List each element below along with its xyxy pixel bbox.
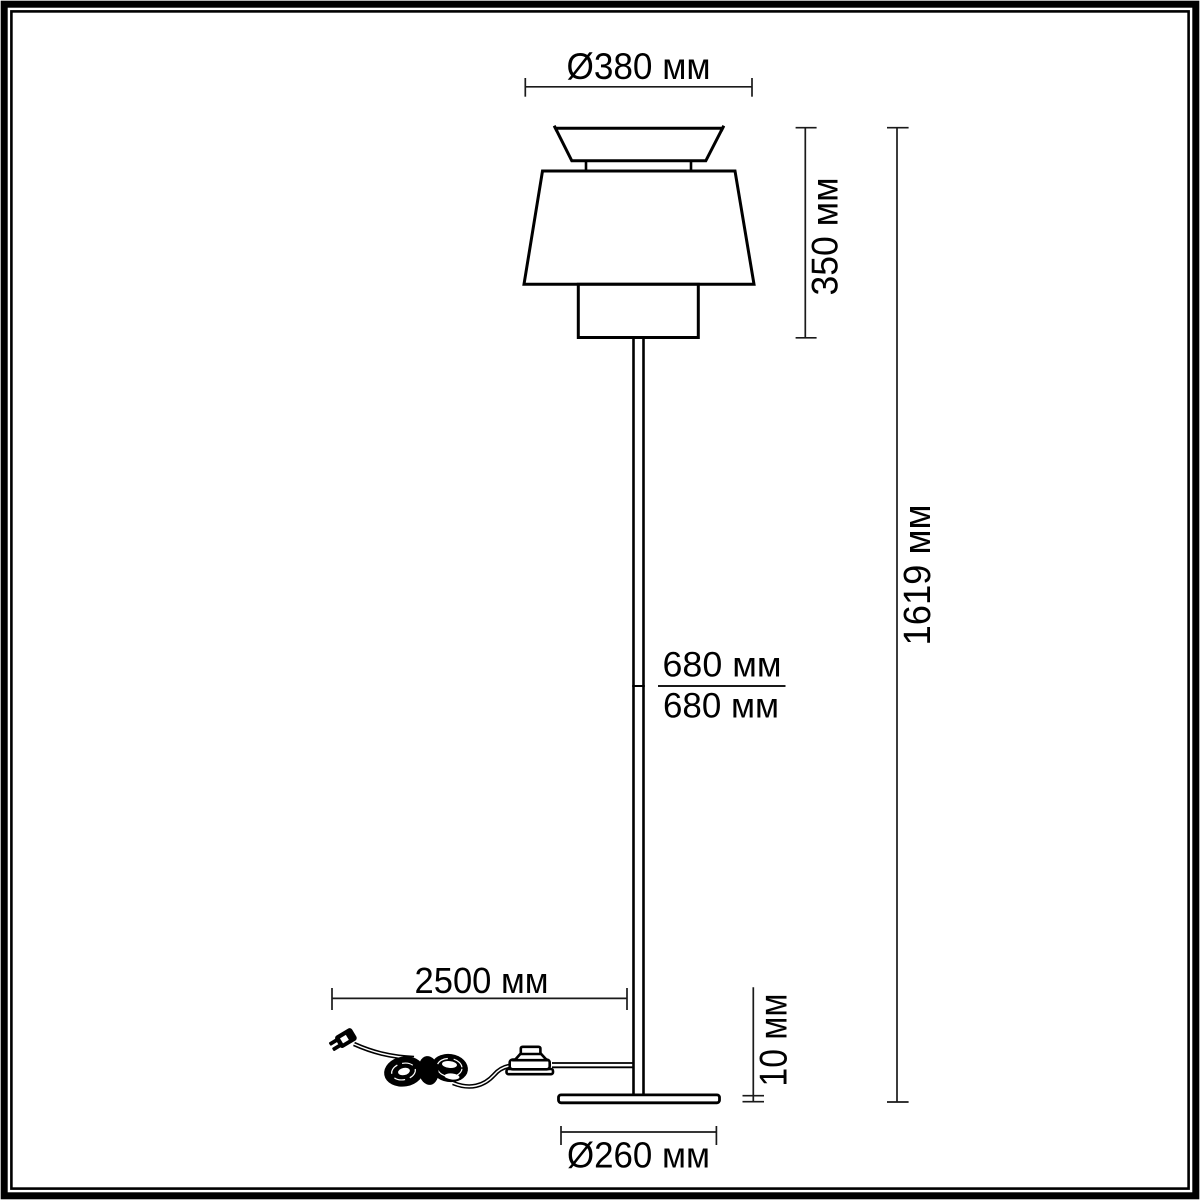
svg-text:680 мм: 680 мм xyxy=(663,646,782,685)
svg-text:350 мм: 350 мм xyxy=(804,178,846,296)
svg-text:Ø260 мм: Ø260 мм xyxy=(567,1135,710,1176)
svg-text:10 мм: 10 мм xyxy=(753,994,796,1087)
svg-text:2500 мм: 2500 мм xyxy=(415,960,549,1001)
svg-text:1619 мм: 1619 мм xyxy=(897,505,939,646)
svg-text:680 мм: 680 мм xyxy=(663,687,779,726)
svg-text:Ø380 мм: Ø380 мм xyxy=(567,45,711,87)
